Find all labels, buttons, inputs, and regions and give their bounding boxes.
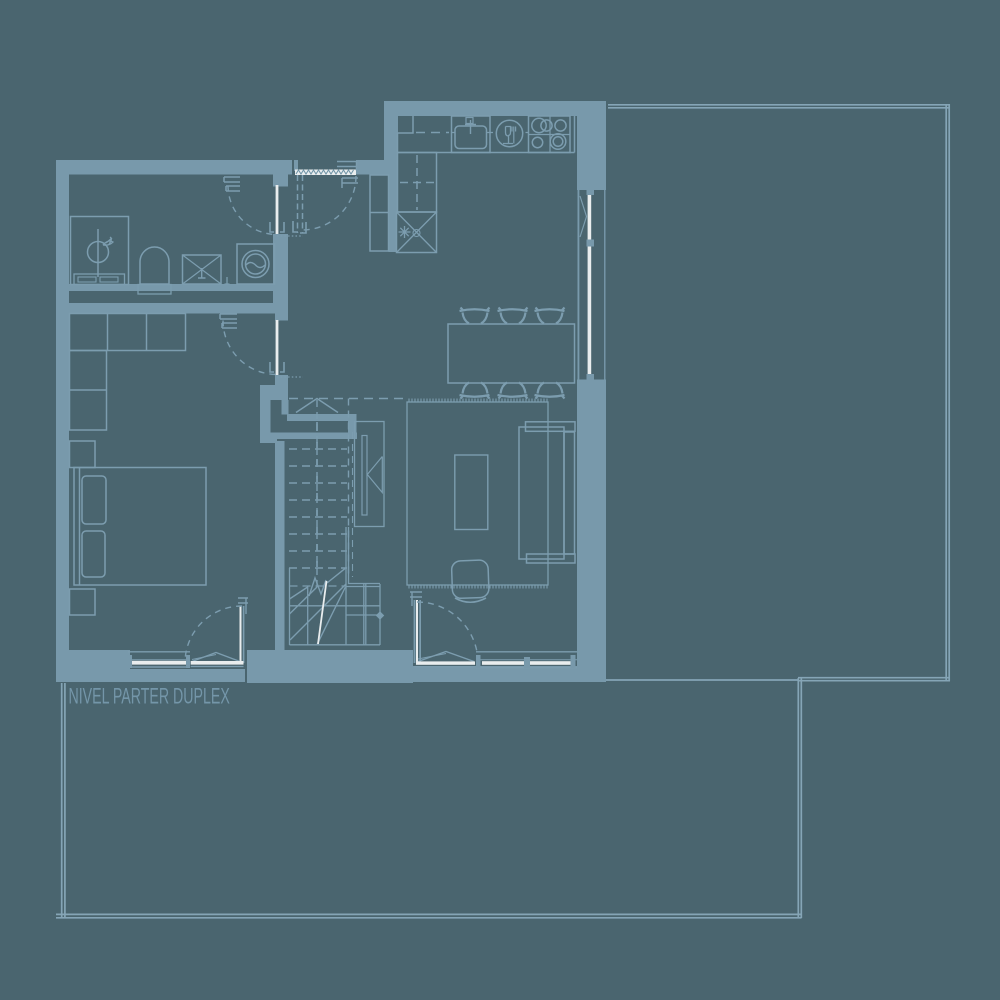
svg-text:NIVEL PARTER DUPLEX: NIVEL PARTER DUPLEX	[69, 683, 230, 708]
